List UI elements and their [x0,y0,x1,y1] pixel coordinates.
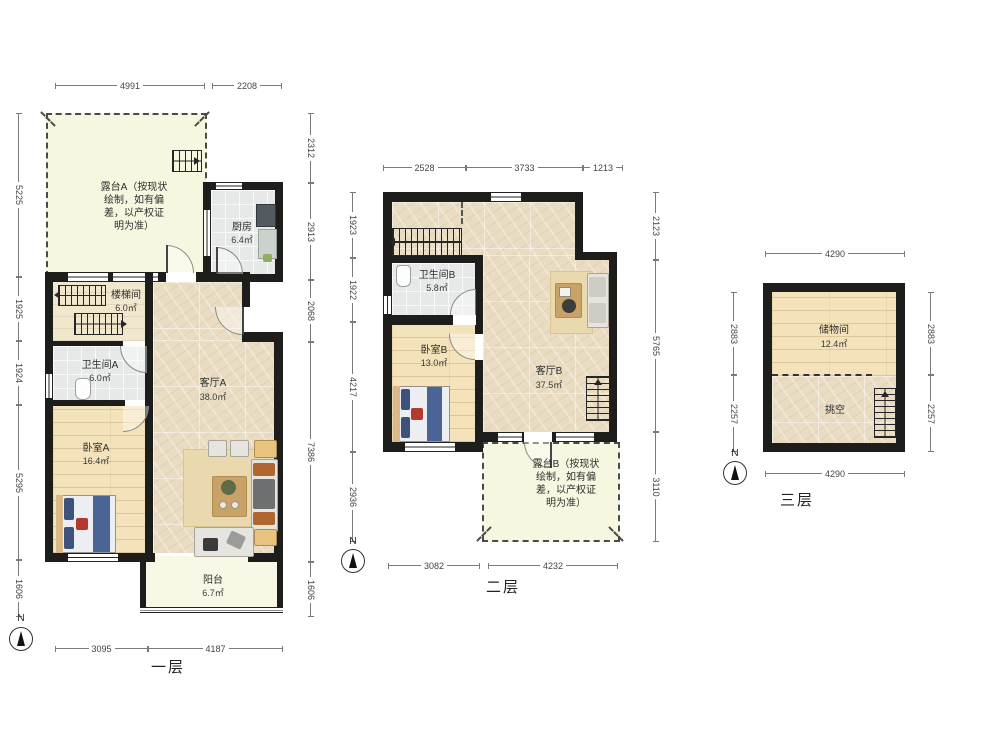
dimension-line: 3095 [55,648,148,649]
pillow [401,417,410,438]
window [68,272,108,282]
window [383,296,392,314]
cup-icon [231,501,239,509]
dimension-label: 1922 [348,277,358,303]
window [556,432,594,442]
wall [277,556,283,612]
room-label: 储物间 [819,325,849,337]
dimension-label: 1606 [306,576,316,602]
wall [242,282,250,307]
wall [609,252,617,442]
dimension-label: 3095 [88,644,114,654]
dimension-line: 4217 [352,322,353,452]
dimension-label: 2312 [306,135,316,161]
dimension-label: 3110 [651,474,661,499]
cup-icon [219,501,227,509]
dimension-label: 4187 [202,644,228,654]
room-area: 13.0㎡ [421,357,448,369]
dimension-line: 1925 [18,277,19,341]
dimension-line: 4187 [148,648,283,649]
dimension-label: 2123 [651,213,661,239]
dimension-line: 2528 [383,167,466,168]
floor3-title: 三层 [780,489,814,510]
dimension-label: 2068 [306,298,316,324]
red-pillow [76,518,88,530]
dimension-label: 1925 [14,296,24,322]
dimension-line: 2257 [930,375,931,452]
dimension-label: 5295 [14,469,24,495]
dimension-label: 1923 [348,212,358,238]
wall [242,332,283,342]
window [491,192,521,202]
dimension-line: 5295 [18,405,19,560]
door-opening [453,315,476,325]
north-compass-icon [723,461,747,485]
dimension-label: 2883 [729,320,739,346]
stair-arrow-icon [594,379,602,385]
wall [203,182,283,190]
chair [562,299,576,313]
wall [140,556,146,612]
north-compass-icon [341,549,365,573]
dimension-line: 1606 [18,560,19,617]
dimension-line: 1213 [583,167,623,168]
window [203,210,211,256]
room-label: 阳台 [203,575,223,587]
armchair [208,440,227,457]
wall [383,192,583,202]
dimension-line: 5765 [655,260,656,432]
dimension-label: 2936 [348,484,358,510]
room-area: 6.0㎡ [89,372,111,384]
room-area: 6.0㎡ [115,302,137,314]
dimension-line: 4991 [55,85,205,86]
room-label: 客厅B [536,366,563,378]
dimension-label: 2528 [411,163,437,173]
bed-headboard [393,386,400,442]
wall [45,400,125,406]
bed-blanket [427,387,442,441]
window [498,432,522,442]
room-area: 38.0㎡ [200,391,227,403]
dashed-line [772,374,872,376]
dimension-line: 1924 [18,341,19,405]
door-opening [524,432,552,442]
room-area: 37.5㎡ [536,379,563,391]
dimension-line: 2312 [310,113,311,183]
dimension-label: 4217 [348,374,358,400]
sofa-cushion [589,303,606,323]
compass-needle-icon [17,631,25,646]
bed-headboard [56,495,63,553]
room-label: 卫生间A [82,360,119,372]
dimension-label: 2208 [234,81,260,91]
door-opening [166,272,196,282]
dimension-line: 2068 [310,280,311,342]
dimension-label: 2883 [926,320,936,346]
dimension-line: 3082 [388,565,480,566]
room-area: 6.7㎡ [202,587,224,599]
window [216,182,242,190]
dimension-label: 4232 [540,561,566,571]
door-leaf [242,307,244,335]
north-label: N [731,448,738,459]
room-label: 卫生间B [419,270,456,282]
dimension-line: 2123 [655,192,656,260]
sofa-cushion [589,277,606,297]
side-table [254,529,277,546]
dimension-label: 7386 [306,439,316,465]
room-label: 卧室B [421,345,448,357]
door-opening [475,334,483,360]
bed-blanket [93,496,110,552]
room-label: 客厅A [200,378,227,390]
north-label: N [17,613,24,624]
dimension-label: 5765 [651,333,661,359]
desk-item-icon [559,287,571,297]
dimension-line: 2913 [310,183,311,280]
wall [45,272,53,562]
compass-needle-icon [349,553,357,568]
dimension-line: 4290 [765,473,905,474]
tv-on-sofa [203,538,218,551]
door-leaf [166,245,168,273]
dimension-label: 1606 [14,575,24,601]
side-table [254,440,277,458]
dimension-label: 4991 [117,81,143,91]
wall [575,192,583,260]
north-label: N [349,536,356,547]
dimension-line: 3733 [466,167,583,168]
wall [383,255,483,263]
room-label: 挑空 [825,405,845,417]
dimension-label: 2257 [729,400,739,426]
room-area: 12.4㎡ [821,338,848,350]
floor1-title: 一层 [151,656,185,677]
dimension-label: 4290 [822,469,848,479]
room-area: 16.4㎡ [83,455,110,467]
dimension-line: 2883 [733,292,734,375]
north-compass-icon [9,627,33,651]
dimension-label: 2913 [306,218,316,244]
sofa-cushion [253,512,275,525]
dimension-line: 2936 [352,452,353,542]
dimension-label: 3733 [511,163,537,173]
dimension-line: 4232 [488,565,618,566]
dimension-line: 1606 [310,562,311,617]
dimension-line: 2208 [212,85,282,86]
kitchen-item-icon [263,254,272,262]
pillow [64,498,74,520]
staircase [74,313,123,335]
dimension-line: 2883 [930,292,931,375]
dimension-label: 5225 [14,182,24,208]
dimension-line: 3110 [655,432,656,542]
dimension-label: 2257 [926,400,936,426]
floor2-title: 二层 [486,576,520,597]
wall [45,341,123,346]
dimension-label: 4290 [822,249,848,259]
toilet-icon [396,265,411,287]
armchair [230,440,249,457]
window [405,442,455,452]
terrace-b-label: 露台B（按现状 绘制，如有偏 差，以产权证 明为准） [506,458,626,510]
pillow [401,389,410,410]
stair-arrow-icon [54,291,60,299]
room-label: 卧室A [83,443,110,455]
dashed-line [461,202,463,224]
door-leaf [216,247,218,274]
dimension-label: 1924 [14,360,24,386]
plant-icon [221,480,236,495]
window [68,553,118,562]
stove-icon [256,204,276,227]
stair-arrow-icon [881,391,889,397]
balcony-window [140,607,283,613]
room-area: 6.4㎡ [231,234,253,246]
stair-arrow-icon [389,238,395,246]
staircase [392,228,462,256]
sofa-cushion [253,463,275,476]
dimension-line: 7386 [310,342,311,562]
room-area: 5.8㎡ [426,282,448,294]
stair-arrow-icon [194,157,200,165]
room-label: 厨房 [232,222,252,234]
dimension-line: 1922 [352,258,353,322]
window [45,374,53,398]
dimension-line: 4290 [765,253,905,254]
dimension-line: 5225 [18,113,19,277]
dimension-label: 1213 [590,163,616,173]
terrace-a-label: 露台A（按现状 绘制，如有偏 差，以产权证 明为准） [74,181,194,233]
dimension-label: 3082 [421,561,447,571]
floor-plan-canvas: 露台A（按现状 绘制，如有偏 差，以产权证 明为准） 厨房 6.4㎡ 楼梯间 6… [0,0,1000,750]
dimension-line: 1923 [352,192,353,258]
staircase [58,285,106,306]
dimension-line: 2257 [733,375,734,452]
compass-needle-icon [731,465,739,480]
sofa-blanket [253,479,275,509]
red-pillow [411,408,423,420]
stair-arrow-icon [121,320,127,328]
pillow [64,527,74,549]
room-label: 楼梯间 [111,290,141,302]
